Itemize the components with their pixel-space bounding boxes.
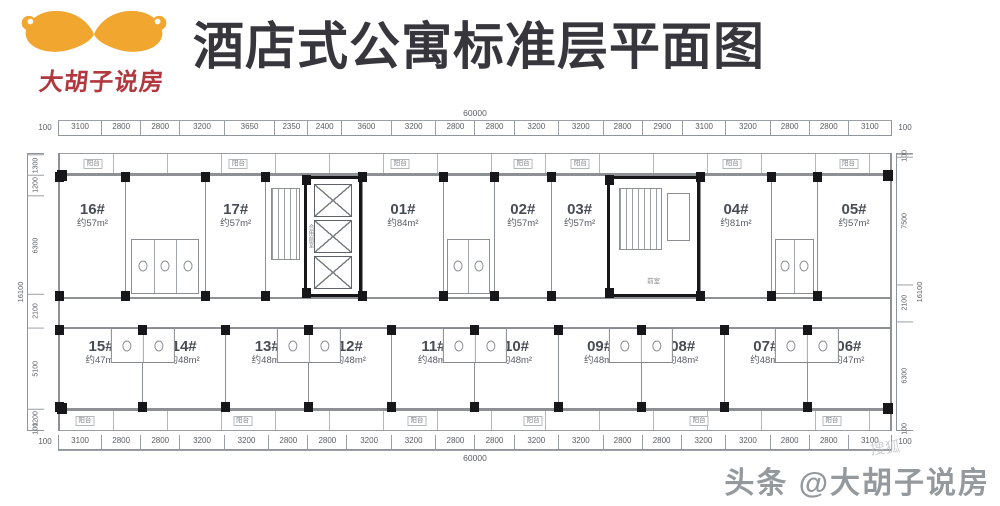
dimension-segment: 3200 [347, 435, 392, 449]
room-01: 01# 约84m² [362, 176, 442, 297]
dimension-segment: 3200 [225, 435, 270, 449]
room-number: 08# [670, 339, 695, 355]
brand-name: 大胡子说房 [20, 62, 184, 97]
ghost-watermark: 搜狐 [869, 435, 901, 459]
balcony-label: 阳台 [233, 416, 252, 426]
room-number: 02# [510, 202, 535, 218]
room-area: 约84m² [387, 218, 418, 230]
room-number: 01# [390, 202, 415, 218]
dimension-segment: 2800 [102, 121, 141, 135]
dimension-segment: 3200 [515, 121, 560, 135]
toilet-fixture [176, 240, 198, 293]
elevator-bank [314, 184, 352, 289]
dimension-segment: 2800 [810, 435, 849, 449]
balcony-label: 阳台 [75, 416, 94, 426]
dimension-segment: 1300 [28, 154, 44, 175]
dimension-segment: 2800 [269, 435, 308, 449]
dimension-segment: 3100 [683, 121, 726, 135]
dimension-segment-list: 3100280028003200320028002800320032002800… [58, 435, 892, 450]
room-area: 约57m² [838, 218, 869, 230]
dimension-segment: 7500 [897, 157, 913, 285]
dimension-segment: 3200 [726, 435, 771, 449]
toilet-fixture [154, 240, 176, 293]
room-04: 04# 约81m² [700, 176, 771, 297]
dimension-total-left: 16100 [14, 153, 27, 431]
room-row-top: 16# 约57m² 17# 约57m² 合用前室 [60, 173, 890, 299]
dimension-segment: 5100 [28, 328, 44, 409]
dimension-segment: 1200 [28, 175, 44, 195]
corridor [60, 299, 890, 328]
room-number: 04# [723, 202, 748, 218]
dimension-col-left: 16100 130012006300210051001200100 [14, 153, 44, 431]
bath-pod-cluster [125, 176, 205, 297]
room-number: 16# [80, 202, 105, 218]
front-room-label: 前室 [647, 275, 660, 285]
dimension-segment: 2800 [771, 435, 810, 449]
column [883, 170, 893, 181]
balcony-label: 阳台 [690, 416, 709, 426]
bathroom-pod [447, 239, 490, 294]
column [57, 170, 67, 181]
dimension-segment: 100 [897, 428, 913, 430]
balcony-label: 阳台 [571, 159, 590, 169]
page: { "header": { "logo_text": "大胡子说房", "tit… [0, 0, 1000, 506]
balcony-label: 阳台 [391, 159, 410, 169]
dimension-segment: 2400 [308, 121, 342, 135]
dimension-segment: 2800 [643, 435, 682, 449]
brand-logo: 大胡子说房 [14, 4, 184, 104]
floor-plan: 60000 100 310028002800320036502350240036… [0, 105, 1000, 506]
dimension-segment: 2800 [436, 435, 475, 449]
dimension-segment: 2800 [604, 121, 643, 135]
elevator-icon [314, 256, 352, 289]
room-16: 16# 约57m² [60, 176, 125, 297]
dimension-segment: 2800 [141, 435, 180, 449]
dimension-segment: 3200 [726, 121, 771, 135]
room-number: 12# [338, 339, 363, 355]
stairs [271, 188, 300, 260]
dimension-segment: 2800 [308, 435, 347, 449]
dimension-total-right: 16100 [913, 153, 926, 431]
room-17: 17# 约57m² [205, 176, 265, 297]
balcony-strip-top: 阳台 阳台 阳台 阳台 阳台 阳台 阳台 [60, 153, 890, 173]
dimension-total-label: 16100 [915, 282, 924, 303]
room-number: 15# [89, 339, 114, 355]
dimension-total-top: 60000 [58, 107, 892, 121]
column [57, 403, 67, 414]
dimension-total-label: 16100 [16, 282, 25, 303]
dimension-segment: 2100 [897, 284, 913, 320]
dimension-segment: 3200 [180, 121, 225, 135]
dimension-segment: 3200 [682, 435, 727, 449]
toilet-fixture [448, 240, 468, 293]
room-number: 17# [223, 202, 248, 218]
balcony-label: 阳台 [723, 159, 742, 169]
room-area: 约57m² [220, 218, 251, 230]
bath-pod-cluster [771, 176, 817, 297]
mustache-icon [14, 4, 184, 66]
dimension-segment-list: 100750021006300100 [896, 153, 913, 431]
stairs [619, 188, 662, 250]
dimension-cap: 100 [32, 435, 58, 450]
room-number: 10# [504, 339, 529, 355]
dimension-segment: 3200 [180, 435, 225, 449]
shared-lobby-label: 合用前室 [306, 224, 315, 248]
dimension-segment: 100 [28, 428, 44, 430]
dimension-segment: 6300 [897, 321, 913, 428]
watermark: 头条 @大胡子说房 [724, 458, 990, 502]
balcony-label: 阳台 [229, 159, 248, 169]
dimension-segment: 3100 [59, 121, 102, 135]
bathroom-pod [131, 239, 199, 294]
dimension-total-label: 60000 [463, 453, 487, 463]
dimension-segment: 2800 [475, 121, 514, 135]
dimension-segment: 3100 [849, 121, 891, 135]
toilet-fixture [132, 240, 153, 293]
dimension-segment: 3650 [225, 121, 276, 135]
dimension-segment: 2350 [275, 121, 308, 135]
balcony-strip-bottom: 阳台 阳台 阳台 阳台 阳台 阳台 [60, 411, 890, 431]
utility-shaft [667, 193, 690, 241]
dimension-total-label: 60000 [463, 108, 487, 118]
room-area: 约57m² [564, 218, 595, 230]
dimension-segment: 3200 [515, 435, 560, 449]
room-area: 约57m² [77, 218, 108, 230]
room-03: 03# 约57m² [551, 176, 608, 297]
dimension-col-right: 100750021006300100 16100 [896, 153, 930, 431]
dimension-segment: 2800 [810, 121, 849, 135]
balcony-label: 阳台 [514, 159, 533, 169]
building-outline: 阳台 阳台 阳台 阳台 阳台 阳台 阳台 16# 约57m² 17# [58, 153, 892, 431]
dimension-segment: 3200 [559, 435, 604, 449]
balcony-label: 阳台 [839, 159, 858, 169]
dimension-row-top: 60000 100 310028002800320036502350240036… [32, 107, 918, 139]
dimension-segment: 2800 [141, 121, 180, 135]
room-05: 05# 约57m² [817, 176, 890, 297]
stair-core-2: 前室 [607, 176, 699, 297]
room-number: 03# [567, 202, 592, 218]
balcony-label: 阳台 [84, 159, 103, 169]
elevator-core: 合用前室 [304, 176, 362, 297]
room-number: 14# [172, 339, 197, 355]
dimension-segment-list: 3100280028003200365023502400360032002800… [58, 121, 892, 136]
bathroom-pod [775, 239, 814, 294]
toilet-fixture [143, 329, 175, 362]
dimension-segment-list: 130012006300210051001200100 [27, 153, 44, 431]
room-number: 11# [421, 339, 445, 355]
dimension-segment: 2800 [436, 121, 475, 135]
dimension-segment: 3200 [392, 121, 437, 135]
balcony-label: 阳台 [822, 416, 841, 426]
elevator-icon [314, 220, 352, 253]
dimension-segment: 2800 [771, 121, 810, 135]
dimension-segment: 3200 [559, 121, 604, 135]
column [883, 403, 893, 414]
dimension-segment: 2800 [604, 435, 643, 449]
toilet-fixture [794, 240, 813, 293]
room-row-bottom: 15# 约47m² 14# 约48m² 13# 约48m² 12# 约48m² … [60, 327, 890, 410]
dimension-segment: 2900 [643, 121, 683, 135]
balcony-label: 阳台 [407, 416, 426, 426]
dimension-segment: 2800 [475, 435, 514, 449]
toilet-fixture [468, 240, 489, 293]
room-area: 约57m² [507, 218, 538, 230]
bath-pod-cluster [443, 176, 494, 297]
dimension-segment: 2800 [102, 435, 141, 449]
elevator-icon [314, 184, 352, 217]
dimension-segments-top: 100 310028002800320036502350240036003200… [32, 121, 918, 136]
stair-core [265, 176, 304, 297]
dimension-cap: 100 [892, 121, 918, 136]
room-area: 约81m² [720, 218, 751, 230]
room-02: 02# 约57m² [494, 176, 551, 297]
dimension-segment: 3100 [59, 435, 102, 449]
balcony-label: 阳台 [524, 416, 543, 426]
dimension-segment: 2100 [28, 294, 44, 328]
toilet-fixture [776, 240, 794, 293]
room-number: 05# [842, 202, 867, 218]
dimension-segments-bottom: 100 310028002800320032002800280032003200… [32, 435, 918, 450]
dimension-cap: 100 [32, 121, 58, 136]
dimension-segment: 3600 [342, 121, 392, 135]
room-number: 06# [836, 339, 861, 355]
page-title: 酒店式公寓标准层平面图 [193, 16, 793, 77]
dimension-segment: 3200 [392, 435, 437, 449]
dimension-segment: 6300 [28, 195, 44, 294]
